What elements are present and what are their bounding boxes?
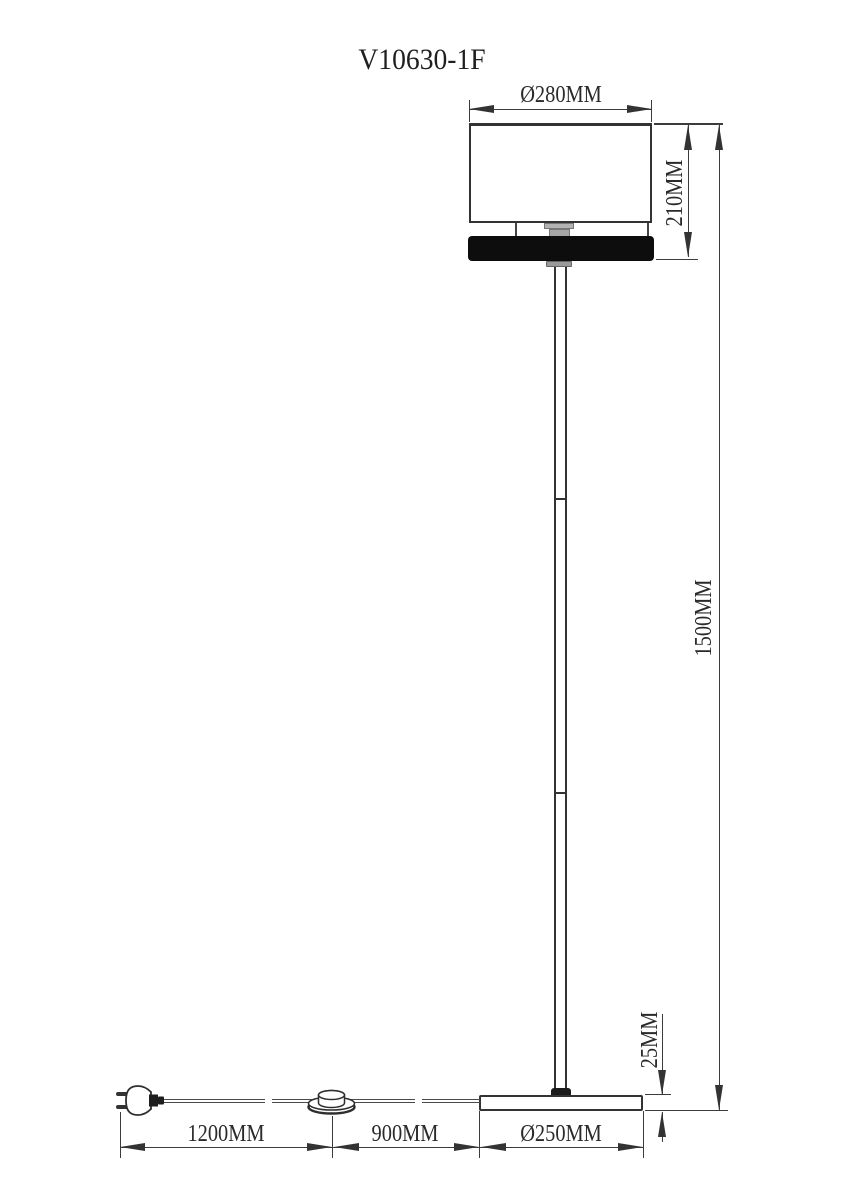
dim-label-shade-diameter: Ø280MM xyxy=(520,83,602,107)
dim-label-cord-switch-to-base: 900MM xyxy=(372,1122,439,1146)
arrowhead xyxy=(618,1143,643,1151)
plug-strain-relief xyxy=(158,1097,164,1105)
dimension-line-bottom xyxy=(120,1147,643,1148)
extension-line xyxy=(656,259,698,260)
arrowhead xyxy=(454,1143,479,1151)
power-cord xyxy=(422,1099,480,1103)
shade-support xyxy=(647,223,649,236)
pole-foot-flange xyxy=(551,1088,571,1095)
lamp-base xyxy=(479,1095,643,1111)
arrowhead xyxy=(334,1143,359,1151)
arrowhead xyxy=(715,125,723,150)
drawing-title: V10630-1F xyxy=(358,45,485,75)
arrowhead xyxy=(715,1085,723,1110)
dimension-line-total-height xyxy=(719,125,720,1110)
switch-button-top xyxy=(319,1091,345,1100)
diffuser-disc xyxy=(468,236,654,261)
extension-line xyxy=(643,1111,644,1158)
extension-line xyxy=(645,1110,728,1111)
shade-support xyxy=(515,223,517,236)
pole-joint xyxy=(554,498,567,500)
arrowhead xyxy=(684,125,692,150)
arrowhead xyxy=(627,105,652,113)
plug-neck xyxy=(149,1095,158,1107)
dim-label-total-height: 1500MM xyxy=(692,579,716,656)
dim-label-shade-height: 210MM xyxy=(663,160,687,227)
arrowhead xyxy=(469,105,494,113)
arrowhead xyxy=(481,1143,506,1151)
lamp-pole xyxy=(554,267,567,1088)
arrowhead xyxy=(120,1143,145,1151)
pole-joint xyxy=(554,792,567,794)
power-cord xyxy=(163,1099,265,1103)
technical-drawing-floor-lamp: V10630-1F Ø280MM 210MM 1500MM 25MM xyxy=(0,0,848,1200)
lamp-shade xyxy=(469,123,652,223)
extension-line xyxy=(332,1116,333,1158)
arrowhead xyxy=(684,232,692,257)
extension-line xyxy=(479,1111,480,1158)
arrowhead xyxy=(658,1112,666,1137)
plug-body xyxy=(126,1086,151,1115)
power-plug xyxy=(108,1084,166,1118)
extension-line xyxy=(120,1112,121,1158)
foot-switch xyxy=(305,1086,359,1118)
dim-label-cord-plug-to-switch: 1200MM xyxy=(187,1122,264,1146)
dimension-line-shade-diameter xyxy=(469,109,652,110)
dim-label-base-diameter: Ø250MM xyxy=(520,1122,602,1146)
arrowhead xyxy=(658,1070,666,1095)
dim-label-base-thickness: 25MM xyxy=(638,1012,662,1069)
arrowhead xyxy=(307,1143,332,1151)
